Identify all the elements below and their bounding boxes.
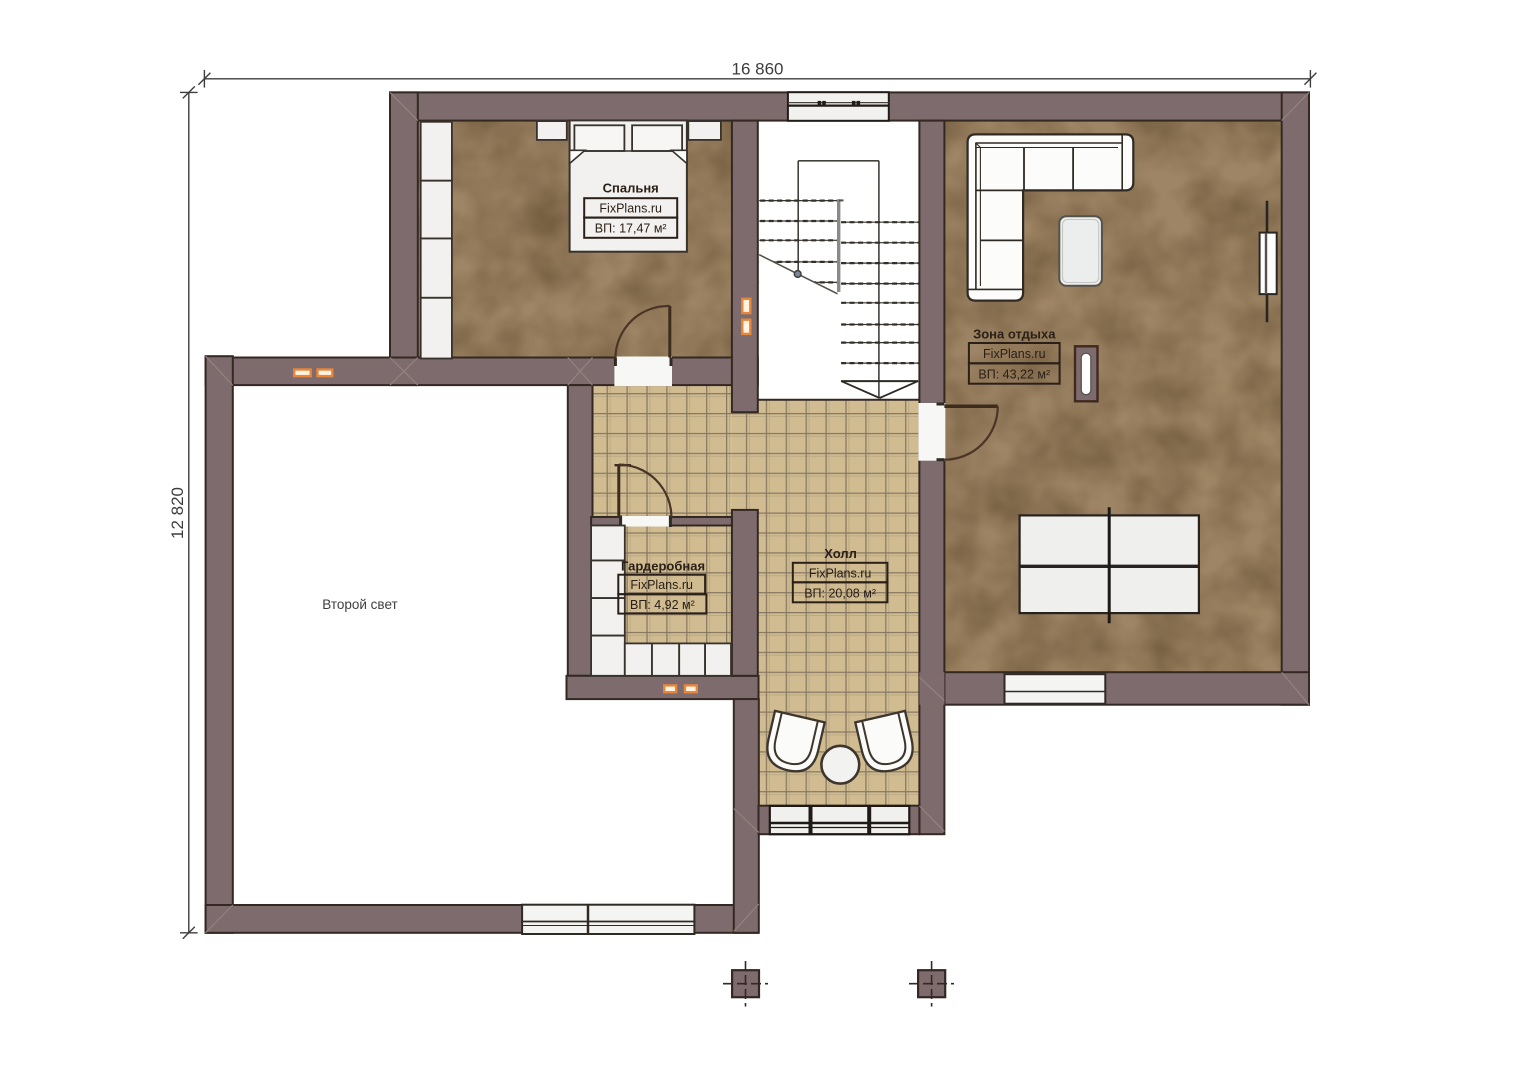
svg-text:Спальня: Спальня bbox=[603, 181, 659, 196]
svg-text:ВП: 43,22 м²: ВП: 43,22 м² bbox=[978, 367, 1050, 381]
svg-text:ВП: 17,47 м²: ВП: 17,47 м² bbox=[595, 222, 667, 236]
svg-text:FixPlans.ru: FixPlans.ru bbox=[983, 347, 1046, 361]
svg-text:ВП: 4,92 м²: ВП: 4,92 м² bbox=[630, 598, 695, 612]
svg-text:FixPlans.ru: FixPlans.ru bbox=[630, 578, 693, 592]
svg-text:Зона отдыха: Зона отдыха bbox=[973, 327, 1056, 342]
svg-text:Холл: Холл bbox=[824, 546, 857, 561]
svg-text:FixPlans.ru: FixPlans.ru bbox=[809, 566, 872, 580]
svg-text:Гардеробная: Гардеробная bbox=[621, 559, 705, 574]
svg-text:ВП: 20,08 м²: ВП: 20,08 м² bbox=[804, 586, 876, 600]
svg-text:12 820: 12 820 bbox=[168, 487, 187, 539]
svg-text:16 860: 16 860 bbox=[732, 60, 784, 79]
svg-text:FixPlans.ru: FixPlans.ru bbox=[599, 202, 662, 216]
svg-text:Второй свет: Второй свет bbox=[322, 597, 397, 612]
